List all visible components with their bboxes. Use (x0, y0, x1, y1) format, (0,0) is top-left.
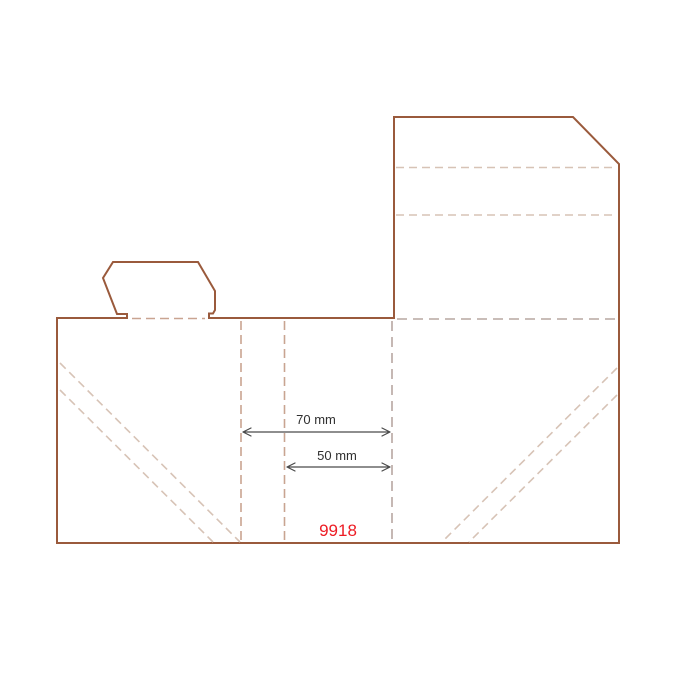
dieline-drawing: 70 mm 50 mm 9918 (0, 0, 675, 675)
diagonal-fold-right-lower (469, 395, 617, 542)
diagonal-fold-right-upper (442, 368, 617, 542)
dieline-canvas: 70 mm 50 mm 9918 (0, 0, 675, 675)
drawing-number: 9918 (319, 521, 357, 540)
dimension-70: 70 mm (243, 412, 390, 436)
dimension-50-arrow (287, 463, 390, 471)
diagonal-fold-left-upper (60, 363, 240, 542)
dimension-70-label: 70 mm (296, 412, 336, 427)
dimension-50: 50 mm (287, 448, 390, 471)
dieline-cut-outline (57, 117, 619, 543)
dimension-50-label: 50 mm (317, 448, 357, 463)
diagonal-fold-left-lower (60, 390, 213, 542)
dimension-70-arrow (243, 428, 390, 436)
